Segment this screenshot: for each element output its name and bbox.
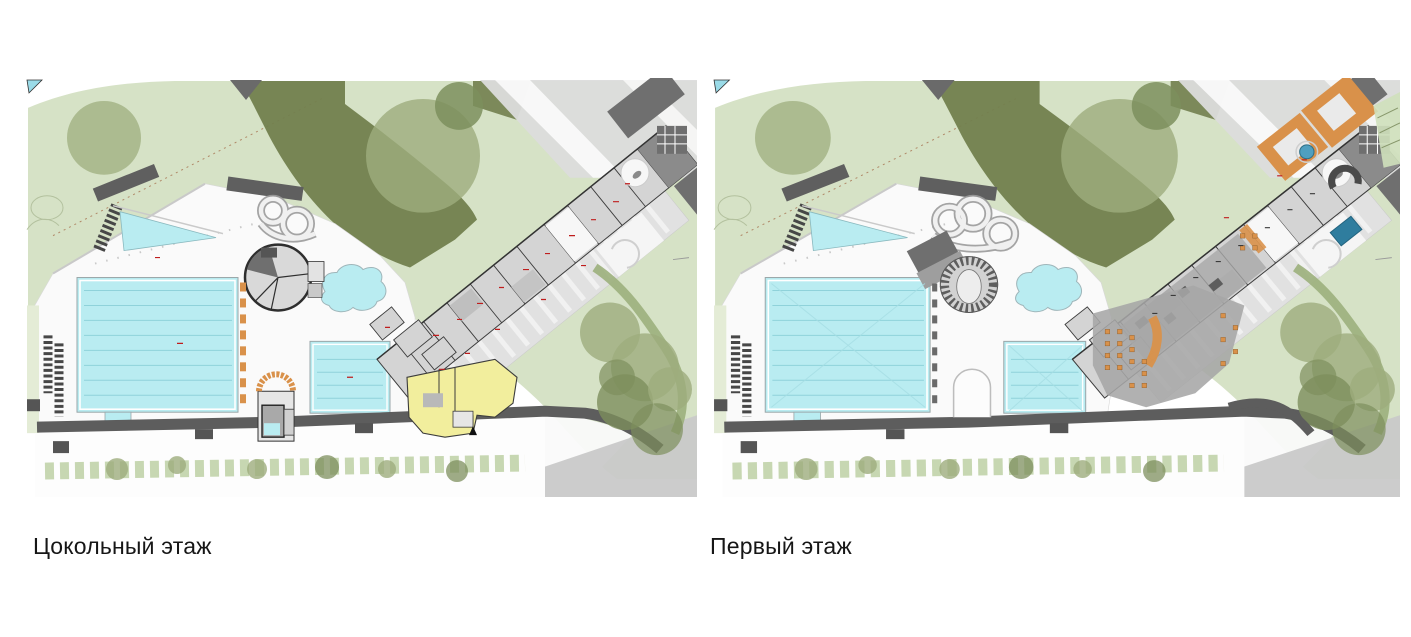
arch-niche <box>954 369 991 417</box>
first-floor-caption: Первый этаж <box>710 532 852 560</box>
basement-plan-drawing <box>25 78 697 497</box>
first-floor-plan-drawing <box>712 78 1400 497</box>
plan-sheet: Цокольный этаж Первый этаж <box>0 0 1411 637</box>
first-floor-plan-figure <box>712 78 1400 497</box>
basement-plan-figure <box>25 78 697 497</box>
basement-caption: Цокольный этаж <box>33 532 212 560</box>
